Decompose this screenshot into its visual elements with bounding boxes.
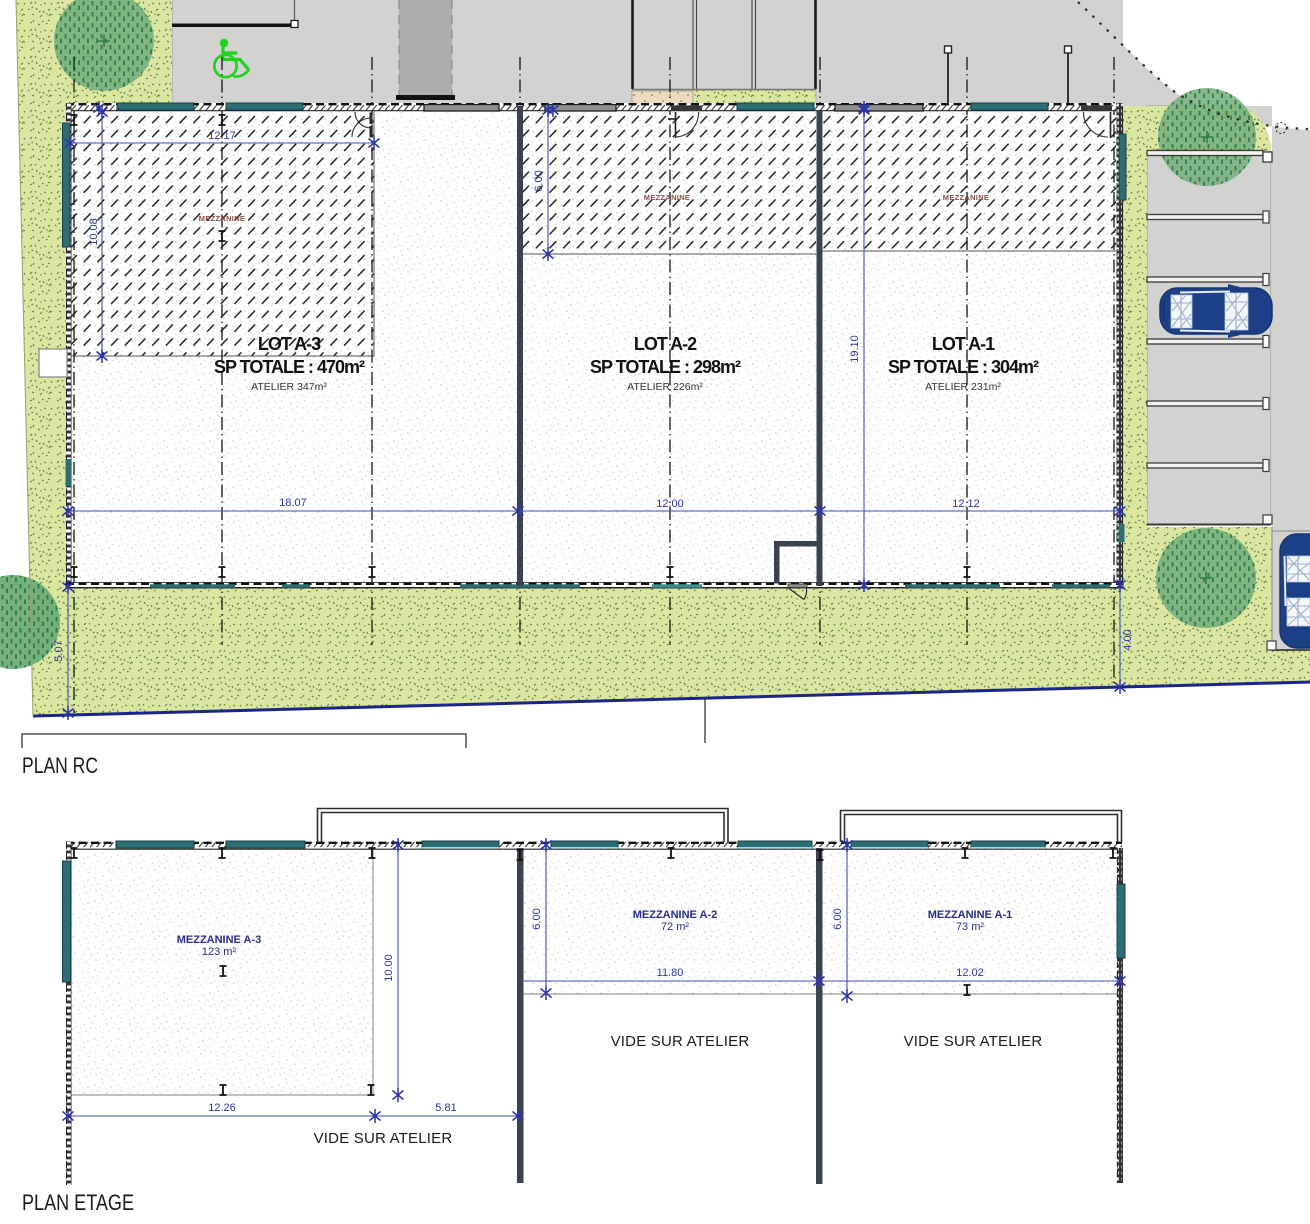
svg-text:LOT A-1: LOT A-1	[932, 334, 995, 354]
svg-text:6.00: 6.00	[531, 908, 543, 929]
svg-text:72 m²: 72 m²	[661, 921, 689, 933]
svg-text:MEZZANINE A-3: MEZZANINE A-3	[177, 934, 262, 946]
svg-text:12.12: 12.12	[952, 498, 980, 510]
svg-text:MEZZANINE A-1: MEZZANINE A-1	[928, 909, 1013, 921]
svg-text:MEZZANINE: MEZZANINE	[644, 193, 690, 202]
svg-text:ATELIER 231m²: ATELIER 231m²	[925, 381, 1001, 393]
svg-text:SP TOTALE : 304m²: SP TOTALE : 304m²	[888, 357, 1039, 377]
svg-text:5.07: 5.07	[53, 640, 65, 661]
svg-text:6.00: 6.00	[832, 908, 844, 929]
svg-text:VIDE SUR ATELIER: VIDE SUR ATELIER	[314, 1130, 453, 1147]
svg-text:10.08: 10.08	[88, 218, 100, 246]
svg-text:4.00: 4.00	[1122, 629, 1134, 650]
svg-text:18.07: 18.07	[279, 497, 307, 509]
svg-text:123 m²: 123 m²	[202, 946, 237, 958]
svg-text:11.80: 11.80	[657, 967, 684, 979]
svg-text:19.10: 19.10	[849, 335, 861, 363]
svg-text:SP TOTALE : 470m²: SP TOTALE : 470m²	[214, 357, 365, 377]
svg-text:MEZZANINE: MEZZANINE	[199, 214, 245, 223]
svg-text:12.26: 12.26	[208, 1102, 236, 1114]
svg-text:12.00: 12.00	[656, 498, 684, 510]
svg-text:MEZZANINE A-2: MEZZANINE A-2	[633, 909, 718, 921]
svg-text:PLAN ETAGE: PLAN ETAGE	[22, 1190, 134, 1215]
svg-text:12.02: 12.02	[956, 967, 984, 979]
svg-text:VIDE SUR ATELIER: VIDE SUR ATELIER	[904, 1033, 1043, 1050]
svg-text:LOT A-3: LOT A-3	[258, 334, 321, 354]
svg-text:10.00: 10.00	[383, 954, 395, 982]
svg-text:6.00: 6.00	[533, 170, 545, 191]
svg-text:SP TOTALE : 298m²: SP TOTALE : 298m²	[590, 357, 741, 377]
svg-text:PLAN RC: PLAN RC	[22, 753, 98, 778]
svg-text:VIDE SUR ATELIER: VIDE SUR ATELIER	[611, 1033, 750, 1050]
svg-text:ATELIER 226m²: ATELIER 226m²	[627, 381, 703, 393]
svg-text:12.17: 12.17	[208, 130, 236, 142]
svg-text:ATELIER 347m²: ATELIER 347m²	[251, 381, 327, 393]
svg-text:5.81: 5.81	[435, 1102, 456, 1114]
svg-text:LOT A-2: LOT A-2	[634, 334, 697, 354]
svg-text:MEZZANINE: MEZZANINE	[943, 193, 989, 202]
svg-text:73 m²: 73 m²	[956, 921, 984, 933]
